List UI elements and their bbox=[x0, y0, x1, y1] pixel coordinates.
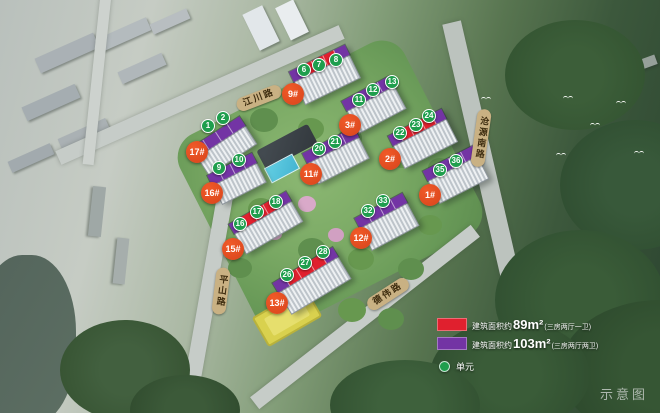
blossom-tree bbox=[328, 228, 344, 242]
city-block bbox=[242, 5, 279, 51]
building-marker-17: 17# bbox=[186, 141, 208, 163]
bird-icon bbox=[481, 96, 492, 101]
city-block bbox=[8, 143, 55, 173]
legend-swatch-red bbox=[437, 318, 467, 331]
unit-marker-28: 28 bbox=[316, 245, 330, 259]
building-marker-1: 1# bbox=[419, 184, 441, 206]
unit-marker-12: 12 bbox=[366, 83, 380, 97]
unit-marker-35: 35 bbox=[433, 163, 447, 177]
unit-marker-10: 10 bbox=[232, 153, 246, 167]
legend-layout-89: (三房两厅一卫) bbox=[544, 322, 591, 332]
tree bbox=[250, 108, 278, 132]
city-block bbox=[275, 0, 309, 41]
legend-item-103: 建筑面积约 103m² (三房两厅两卫) bbox=[437, 336, 598, 350]
building-marker-2: 2# bbox=[379, 148, 401, 170]
building-marker-3: 3# bbox=[339, 114, 361, 136]
legend-unit-label: 单元 bbox=[456, 360, 474, 373]
building-marker-9: 9# bbox=[282, 83, 304, 105]
city-block bbox=[149, 8, 190, 34]
building-marker-11: 11# bbox=[300, 163, 322, 185]
city-block bbox=[21, 84, 80, 121]
unit-marker-7: 7 bbox=[312, 58, 326, 72]
unit-marker-21: 21 bbox=[328, 135, 342, 149]
bird-icon bbox=[616, 100, 627, 105]
legend-unit-dot bbox=[439, 361, 450, 372]
legend-prefix: 建筑面积约 bbox=[472, 321, 512, 332]
unit-marker-9: 9 bbox=[212, 161, 226, 175]
unit-marker-23: 23 bbox=[409, 118, 423, 132]
blossom-tree bbox=[298, 196, 316, 212]
unit-marker-32: 32 bbox=[361, 204, 375, 218]
city-block bbox=[35, 33, 100, 74]
unit-marker-1: 1 bbox=[201, 119, 215, 133]
bird-icon bbox=[634, 150, 645, 155]
legend: 建筑面积约 89m² (三房两厅一卫) 建筑面积约 103m² (三房两厅两卫)… bbox=[437, 317, 598, 378]
tree bbox=[348, 248, 374, 270]
unit-marker-22: 22 bbox=[393, 126, 407, 140]
building-marker-15: 15# bbox=[222, 238, 244, 260]
unit-marker-24: 24 bbox=[422, 109, 436, 123]
legend-prefix: 建筑面积约 bbox=[472, 340, 512, 351]
bird-icon bbox=[563, 95, 574, 100]
unit-marker-8: 8 bbox=[329, 53, 343, 67]
city-block bbox=[117, 53, 166, 84]
unit-marker-13: 13 bbox=[385, 75, 399, 89]
unit-marker-20: 20 bbox=[312, 142, 326, 156]
unit-marker-27: 27 bbox=[298, 256, 312, 270]
watermark: 示意图 bbox=[600, 384, 648, 403]
building-marker-13: 13# bbox=[266, 292, 288, 314]
bird-icon bbox=[556, 152, 567, 157]
bird-icon bbox=[590, 122, 601, 127]
unit-marker-16: 16 bbox=[233, 217, 247, 231]
unit-marker-18: 18 bbox=[269, 195, 283, 209]
legend-area-89: 89m² bbox=[513, 317, 543, 332]
legend-layout-103: (三房两厅两卫) bbox=[552, 341, 599, 351]
unit-marker-33: 33 bbox=[376, 194, 390, 208]
city-block bbox=[88, 186, 106, 237]
tree bbox=[338, 298, 366, 322]
tree bbox=[378, 308, 404, 330]
legend-item-89: 建筑面积约 89m² (三房两厅一卫) bbox=[437, 317, 598, 331]
tree bbox=[418, 215, 442, 235]
legend-swatch-purple bbox=[437, 337, 467, 350]
city-block bbox=[113, 237, 130, 284]
legend-item-unit: 单元 bbox=[437, 359, 598, 373]
building-marker-12: 12# bbox=[350, 227, 372, 249]
unit-marker-36: 36 bbox=[449, 154, 463, 168]
tree bbox=[228, 258, 252, 278]
legend-area-103: 103m² bbox=[513, 336, 551, 351]
unit-marker-11: 11 bbox=[352, 93, 366, 107]
building-marker-16: 16# bbox=[201, 182, 223, 204]
site-plan-stage: 建筑面积约 89m² (三房两厅一卫) 建筑面积约 103m² (三房两厅两卫)… bbox=[0, 0, 660, 413]
forest bbox=[505, 20, 645, 130]
unit-marker-17: 17 bbox=[250, 205, 264, 219]
unit-marker-2: 2 bbox=[216, 111, 230, 125]
unit-marker-26: 26 bbox=[280, 268, 294, 282]
unit-marker-6: 6 bbox=[297, 63, 311, 77]
